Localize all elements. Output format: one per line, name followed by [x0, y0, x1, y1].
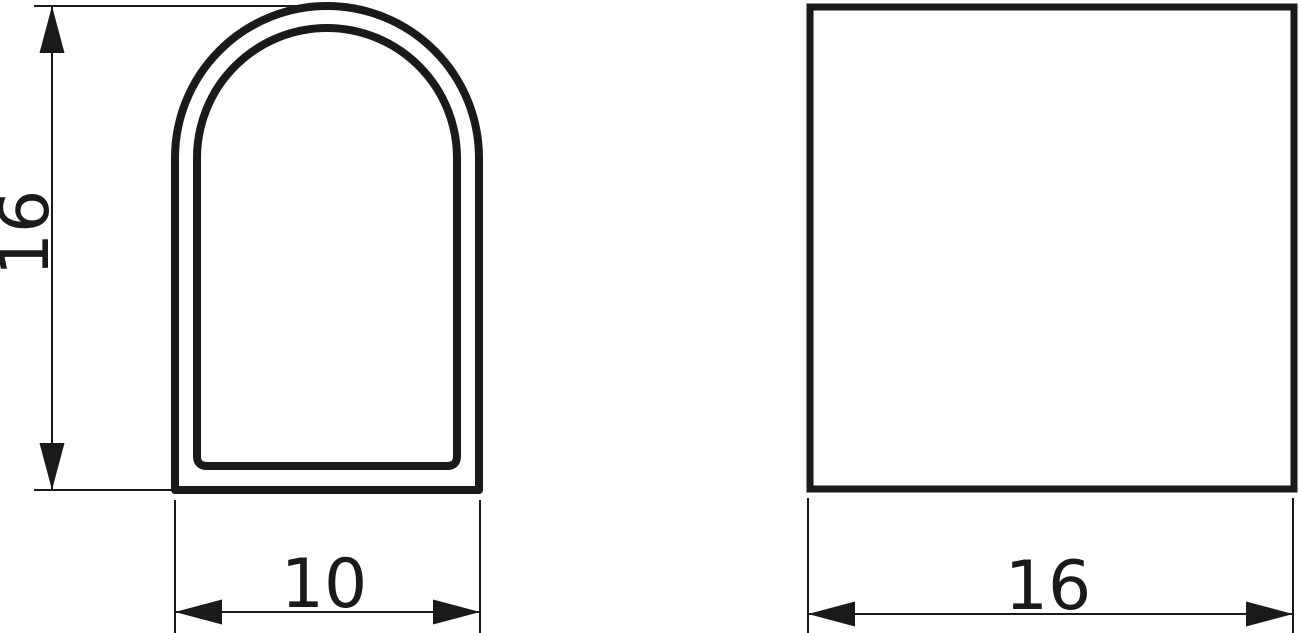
- width-arrowhead-left: [175, 600, 222, 625]
- height-arrowhead-bottom: [40, 443, 65, 490]
- front-view-width-dimension: 10: [175, 500, 480, 633]
- side-view-outline: [810, 7, 1294, 489]
- technical-drawing: 16 10 16: [0, 0, 1299, 633]
- height-dimension-label: 16: [0, 190, 65, 277]
- side-view-width-dimension: 16: [808, 498, 1293, 633]
- front-view-inner-contour: [197, 28, 457, 466]
- front-view-height-dimension: 16: [0, 6, 300, 490]
- side-width-arrowhead-left: [808, 602, 855, 627]
- side-view: [810, 7, 1294, 489]
- drawing-canvas: 16 10 16: [0, 0, 1299, 633]
- height-arrowhead-top: [40, 6, 65, 53]
- width-dimension-label: 10: [281, 545, 368, 624]
- front-view: [175, 6, 479, 490]
- width-arrowhead-right: [433, 600, 480, 625]
- side-width-arrowhead-right: [1246, 602, 1293, 627]
- side-width-dimension-label: 16: [1005, 547, 1092, 626]
